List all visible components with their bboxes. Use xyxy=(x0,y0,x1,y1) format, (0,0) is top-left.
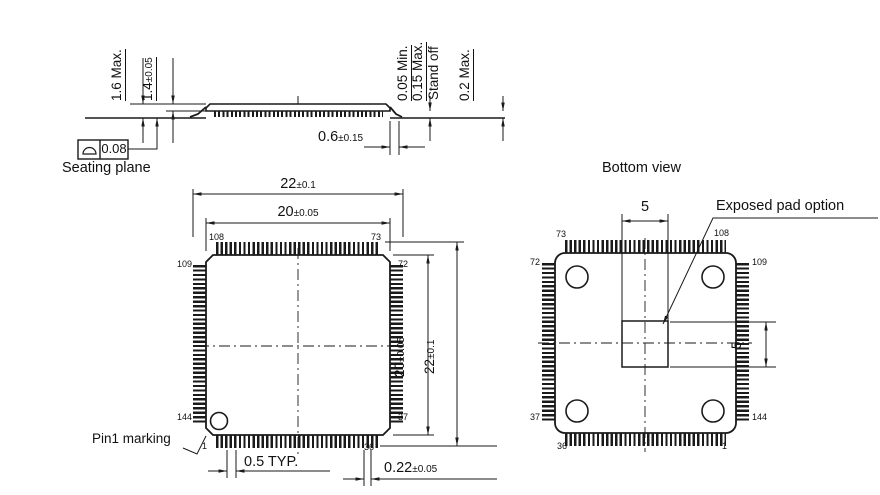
bv-pin-label-bottom-left: 36 xyxy=(557,441,567,452)
dim-overall-width: 22±0.1 xyxy=(263,176,333,194)
dim-body-thickness: 1.4±0.05 xyxy=(140,57,157,101)
exposed-pad-leader xyxy=(663,218,878,324)
top-view-centerlines xyxy=(198,248,398,455)
side-view-lead-ticks xyxy=(214,111,383,117)
exposed-pad-label: Exposed pad option xyxy=(716,198,844,214)
pin-label-bottom-left: 1 xyxy=(202,441,207,452)
bv-pin-label-left-bottom: 37 xyxy=(518,412,540,423)
corner-circle-top-right xyxy=(702,266,724,288)
dim-lead-width: 0.22±0.05 xyxy=(384,460,437,478)
pin-label-left-top: 109 xyxy=(170,259,192,270)
bv-pin-label-left-top: 72 xyxy=(518,257,540,268)
bottom-view-title: Bottom view xyxy=(602,160,681,176)
left-gullwing-lead xyxy=(190,107,206,117)
dim-standoff-max: 0.15 Max. xyxy=(410,42,427,101)
pin-label-bottom-right: 36 xyxy=(364,442,374,453)
corner-circle-bottom-right xyxy=(702,400,724,422)
seating-tolerance-value: 0.08 xyxy=(100,141,128,157)
corner-circle-bottom-left xyxy=(566,400,588,422)
bottom-view-pins-top xyxy=(565,240,726,253)
top-view-pins-bottom xyxy=(216,435,380,448)
pin-label-top-right: 73 xyxy=(371,232,381,243)
bv-pin-label-bottom-right: 1 xyxy=(722,441,727,452)
dim-body-height: 20±0.05 xyxy=(392,337,408,377)
top-view-pins-left xyxy=(193,265,206,425)
pin1-marking-label: Pin1 marking xyxy=(92,431,171,447)
pin-label-right-bottom: 37 xyxy=(398,412,408,423)
dim-foot-length: 0.6±0.15 xyxy=(318,129,363,147)
seating-plane-label: Seating plane xyxy=(62,160,151,176)
pin1-marking-circle xyxy=(211,413,228,430)
seating-plane-symbol xyxy=(83,148,96,155)
dim-body-width: 20±0.05 xyxy=(258,204,338,222)
standoff-label: Stand off xyxy=(426,46,442,100)
bv-pin-label-top-left: 73 xyxy=(556,229,566,240)
dim-pad-width: 5 xyxy=(636,199,654,215)
dim-pad-height: 5 xyxy=(729,341,745,349)
dim-height-max: 1.6 Max. xyxy=(109,49,126,101)
dim-lead-thickness: 0.2 Max. xyxy=(457,49,474,101)
bv-pin-label-right-top: 109 xyxy=(752,257,767,268)
dim-lead-pitch: 0.5 TYP. xyxy=(244,454,298,470)
right-gullwing-lead xyxy=(390,107,402,117)
bottom-view-pins-left xyxy=(542,263,555,423)
pin-label-top-left: 108 xyxy=(209,232,224,243)
bv-pin-label-top-right: 108 xyxy=(714,228,729,239)
bottom-view-pins-bottom xyxy=(565,433,726,446)
top-view-body-outline xyxy=(206,255,390,435)
bv-pin-label-right-bottom: 144 xyxy=(752,412,767,423)
dim-overall-height: 22±0.1 xyxy=(422,340,438,374)
top-view-pins-top xyxy=(216,242,380,255)
package-dimension-drawing: 1.6 Max. 1.4±0.05 0.05 Min. 0.15 Max. St… xyxy=(0,0,880,495)
pin-label-left-bottom: 144 xyxy=(170,412,192,423)
side-view-body-outline xyxy=(206,104,390,111)
corner-circle-top-left xyxy=(566,266,588,288)
pin-label-right-top: 72 xyxy=(398,259,408,270)
